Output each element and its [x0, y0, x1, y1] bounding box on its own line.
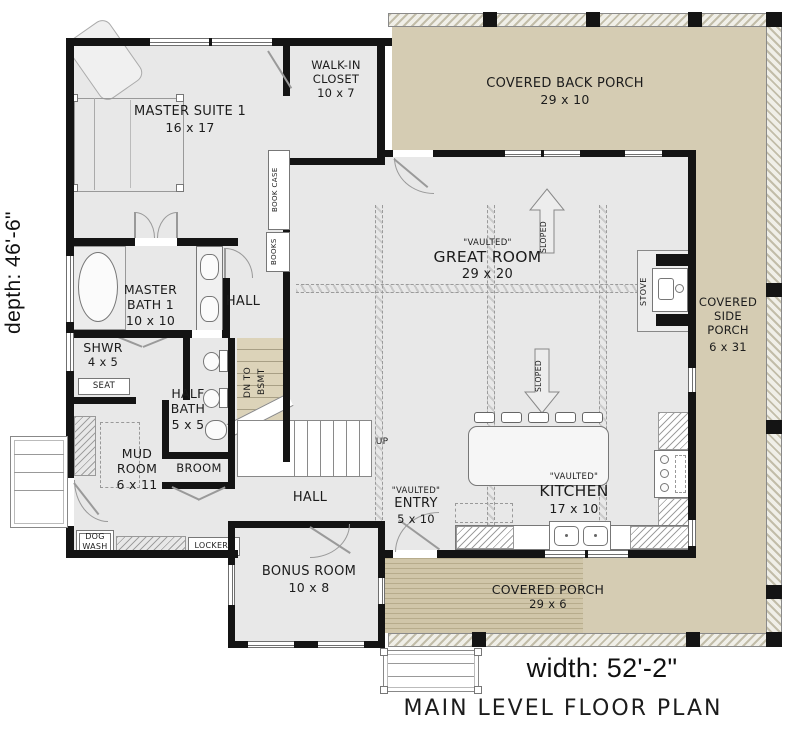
toilet-tank [219, 350, 228, 372]
up-stair-treads [282, 421, 371, 476]
side-steps [10, 436, 68, 528]
burner [660, 483, 669, 492]
bar-stool [501, 412, 522, 423]
bed-post [176, 184, 184, 192]
dn-to-label: DN TO [243, 346, 257, 418]
faucet-dot [565, 534, 568, 537]
porch-post [766, 632, 782, 647]
bed-headboard-line [94, 98, 95, 190]
porch-post [688, 12, 702, 27]
counter-hatch [630, 526, 689, 549]
room-label-bonus-room: BONUS ROOM 10 x 8 [238, 564, 380, 595]
step-post [380, 648, 388, 656]
porch-rail [766, 13, 782, 647]
door-opening [192, 330, 222, 338]
toilet [203, 352, 220, 371]
sloped-label: SLOPED [534, 354, 549, 398]
porch-post [483, 12, 497, 27]
books-label: BOOKS [270, 234, 286, 270]
room-label-hall-lower: HALL [278, 490, 342, 506]
window-mullion [209, 38, 212, 46]
window [318, 641, 364, 648]
room-label-half-bath: HALF BATH 5 x 5 [150, 386, 226, 432]
step-post [380, 686, 388, 694]
door-opening [135, 238, 177, 246]
porch-post [686, 632, 700, 647]
porch-post [766, 12, 782, 27]
room-label-covered-back-porch: COVERED BACK PORCH 29 x 10 [440, 76, 690, 107]
room-label-great-room: "VAULTED" GREAT ROOM 29 x 20 [400, 238, 575, 283]
wall [228, 521, 385, 528]
step-line [14, 454, 64, 455]
step-line [14, 490, 64, 491]
wall [66, 397, 136, 404]
bar-stool [528, 412, 549, 423]
porch-post [472, 632, 486, 647]
bar-stool [555, 412, 576, 423]
range-dashed [675, 455, 686, 493]
window [228, 565, 235, 605]
room-label-covered-side-porch: COVERED SIDE PORCH 6 x 31 [694, 295, 762, 354]
stove-wall [656, 254, 688, 266]
dog-label: DOG [76, 532, 114, 542]
room-label-master-bath: MASTER BATH 1 10 x 10 [108, 282, 193, 328]
faucet-dot [594, 534, 597, 537]
ceiling-beam [375, 205, 383, 525]
bar-stool [582, 412, 603, 423]
room-label-entry: "VAULTED" ENTRY 5 x 10 [384, 486, 448, 526]
porch-post [766, 585, 782, 599]
room-label-walk-in-closet: WALK-IN CLOSET 10 x 7 [291, 58, 381, 100]
room-label-mud-room: MUD ROOM 6 x 11 [100, 446, 174, 492]
wall [290, 158, 385, 165]
porch-rail [388, 633, 782, 647]
window [66, 256, 74, 322]
window [248, 641, 294, 648]
stove-body [658, 278, 674, 300]
sink [200, 254, 219, 280]
wall [283, 46, 290, 96]
step-post [474, 686, 482, 694]
window [688, 520, 696, 546]
room-label-shower: SHWR 4 x 5 [70, 340, 136, 369]
page-title: MAIN LEVEL FLOOR PLAN [393, 696, 733, 723]
counter-hatch [456, 526, 514, 549]
burner [660, 455, 669, 464]
stove-flue [675, 284, 684, 293]
seat-label: SEAT [78, 381, 130, 391]
up-label: UP [372, 437, 392, 448]
room-label-hall-upper: HALL [212, 294, 274, 310]
bar-stool [474, 412, 495, 423]
wall [66, 550, 238, 558]
book-case-label: BOOK CASE [271, 153, 287, 227]
counter-hatch [658, 412, 690, 450]
dog-wash-tub [74, 416, 96, 476]
window [688, 368, 696, 392]
stove-wall [656, 314, 688, 326]
porch-post [766, 420, 782, 434]
porch-post [586, 12, 600, 27]
porch-rail [388, 13, 782, 27]
room-label-covered-porch: COVERED PORCH 29 x 6 [448, 582, 648, 611]
floor-plan: SLOPED SLOPED DN TO BSMT UP SEAT DOG WAS… [0, 0, 800, 738]
cabinet-dashed [455, 503, 513, 523]
depth-dimension: depth: 46'-6" [2, 158, 36, 388]
step-line [14, 472, 64, 473]
burner [660, 469, 669, 478]
bed-post [176, 94, 184, 102]
porch-post [766, 283, 782, 297]
width-dimension: width: 52'-2" [462, 652, 742, 685]
room-label-master-suite: MASTER SUITE 1 16 x 17 [115, 104, 265, 135]
stove-label: STOVE [639, 266, 652, 318]
room-label-broom: BROOM [168, 461, 230, 475]
window-mullion [541, 150, 544, 157]
window-mullion [585, 550, 588, 558]
room-label-kitchen: "VAULTED" KITCHEN 17 x 10 [512, 472, 636, 517]
door-opening [393, 150, 433, 157]
bsmt-label: BSMT [257, 346, 271, 418]
window [625, 150, 662, 157]
ridge-line [296, 284, 688, 293]
